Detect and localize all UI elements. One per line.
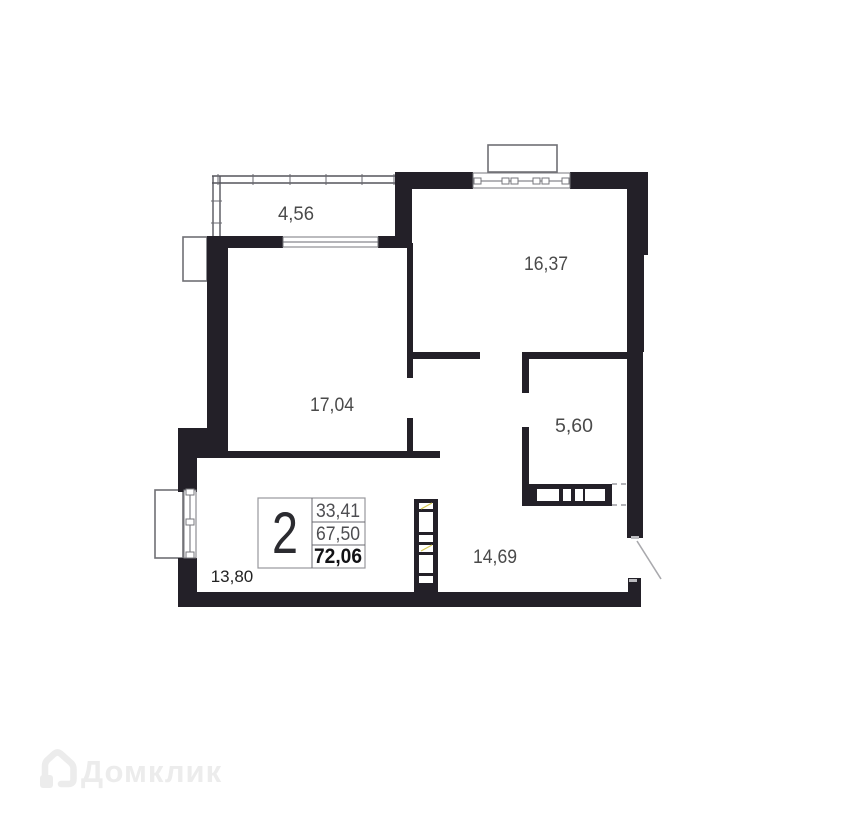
bay-projection-top	[488, 145, 557, 172]
summary-value-middle: 67,50	[316, 524, 360, 545]
entrance-door	[629, 536, 661, 582]
ventilation-shaft	[414, 499, 438, 593]
exterior-box-upper-left	[183, 237, 207, 281]
outer-walls	[178, 172, 648, 607]
room-label-hallway: 14,69	[473, 547, 517, 568]
window-lower-left	[184, 489, 196, 558]
wall-segment	[207, 236, 283, 248]
door-swing-line	[637, 541, 661, 579]
floorplan-canvas: 4,56 16,37 17,04 5,60 14,69 13,80 2 33,4…	[0, 0, 848, 813]
room-label-balcony: 4,56	[278, 204, 314, 225]
watermark-brand: Домклик	[81, 754, 222, 789]
partition-segment	[522, 427, 529, 506]
domclick-house-icon	[40, 753, 74, 789]
wall-segment	[627, 172, 648, 255]
window-top-right	[473, 173, 570, 188]
room-label-bottom-left-room: 13,80	[211, 567, 254, 586]
exterior-box-lower-left	[155, 490, 183, 558]
area-summary-box: 2 33,41 67,50 72,06	[258, 498, 365, 568]
interior-partitions	[225, 243, 633, 506]
partition-segment	[412, 352, 480, 359]
room-label-left-room: 17,04	[310, 395, 354, 416]
summary-value-bottom: 72,06	[314, 545, 362, 568]
partition-segment	[522, 359, 529, 393]
summary-value-top: 33,41	[316, 501, 360, 522]
wall-segment	[178, 452, 197, 492]
wall-segment	[627, 255, 644, 352]
wall-segment	[627, 352, 643, 538]
windows	[184, 173, 570, 558]
wall-segment	[395, 172, 412, 243]
watermark: Домклик	[40, 753, 222, 790]
partition-segment	[225, 451, 440, 458]
window-balcony	[283, 237, 378, 247]
room-label-top-right-room: 16,37	[524, 254, 568, 275]
wall-segment	[178, 558, 197, 602]
partition-segment	[522, 352, 633, 359]
wall-segment	[207, 236, 228, 436]
summary-rooms-count: 2	[272, 501, 298, 566]
wardrobe	[529, 484, 628, 506]
room-label-small-room: 5,60	[555, 416, 593, 437]
wall-segment	[178, 592, 641, 607]
